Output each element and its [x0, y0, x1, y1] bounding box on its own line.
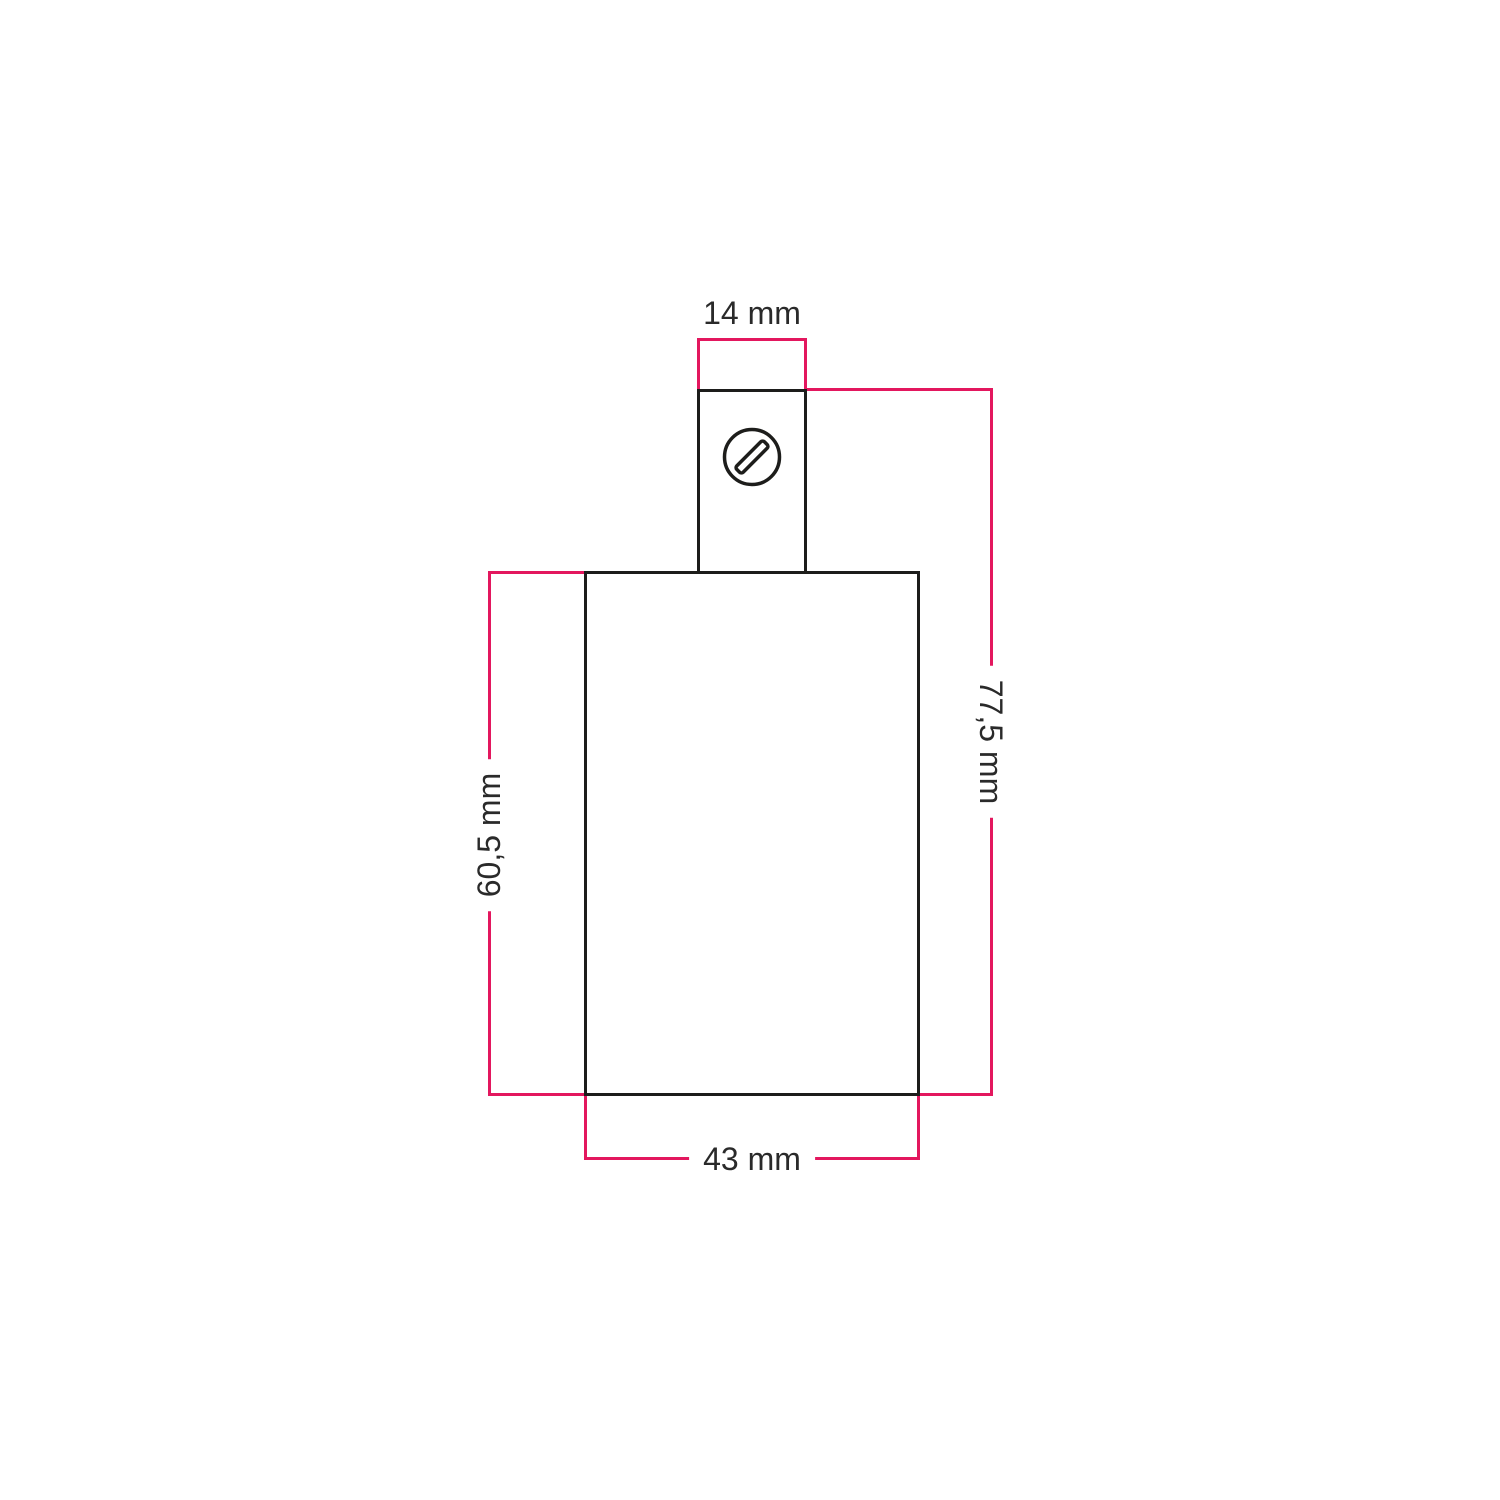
- product-body-outline: [584, 571, 920, 1096]
- dimension-bracket-clamp-width: [697, 338, 807, 391]
- dimension-line-body-height-top-leg: [488, 571, 584, 574]
- dimension-label-body-width: 43 mm: [689, 1137, 815, 1181]
- dimension-drawing-canvas: 14 mm 77,5 mm 60,5 mm 43 mm: [0, 0, 1500, 1500]
- slotted-screw-head-icon: [720, 425, 784, 489]
- dimension-line-overall-height-top-leg: [807, 388, 993, 391]
- dimension-label-clamp-width: 14 mm: [689, 291, 815, 335]
- dimension-line-overall-height-bottom-leg: [920, 1093, 993, 1096]
- dimension-label-body-height: 60,5 mm: [467, 759, 511, 911]
- dimension-line-body-height-bottom-leg: [488, 1093, 584, 1096]
- dimension-label-overall-height: 77,5 mm: [969, 666, 1013, 818]
